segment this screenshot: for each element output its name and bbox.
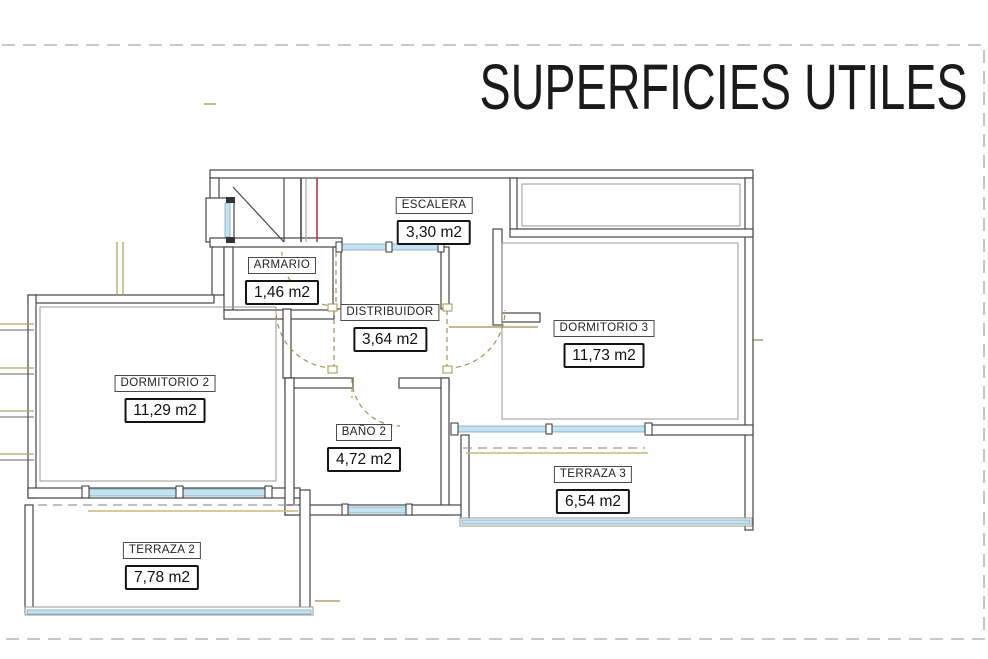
room-area-box: 6,54 m2 [556, 489, 630, 514]
floorplan-page: SUPERFICIES UTILES ESCALERA 3,30 m2 ARMA… [0, 0, 988, 659]
room-area-box: 11,73 m2 [563, 343, 644, 368]
room-label-dormitorio2: DORMITORIO 2 11,29 m2 [115, 375, 216, 423]
staircase [233, 178, 317, 242]
room-area-box: 1,46 m2 [245, 280, 319, 305]
room-name-box: ARMARIO [248, 257, 316, 274]
room-area-box: 3,64 m2 [353, 327, 427, 352]
room-area-box: 7,78 m2 [125, 565, 199, 590]
room-name-box: TERRAZA 3 [554, 466, 632, 483]
room-name-box: DORMITORIO 3 [554, 320, 655, 337]
room-label-terraza3: TERRAZA 3 6,54 m2 [554, 466, 632, 514]
room-label-armario: ARMARIO 1,46 m2 [245, 257, 319, 305]
room-label-bano2: BAÑO 2 4,72 m2 [327, 424, 401, 472]
room-area-box: 4,72 m2 [327, 447, 401, 472]
room-name-box: ESCALERA [396, 197, 473, 214]
room-name-box: DORMITORIO 2 [115, 375, 216, 392]
room-name-box: TERRAZA 2 [123, 542, 201, 559]
room-label-terraza2: TERRAZA 2 7,78 m2 [123, 542, 201, 590]
room-label-distribuidor: DISTRIBUIDOR 3,64 m2 [340, 304, 439, 352]
room-name-box: DISTRIBUIDOR [340, 304, 439, 321]
room-label-escalera: ESCALERA 3,30 m2 [396, 197, 473, 245]
duct-marks [117, 242, 123, 295]
room-area-box: 3,30 m2 [397, 220, 471, 245]
room-area-box: 11,29 m2 [124, 398, 205, 423]
room-label-dormitorio3: DORMITORIO 3 11,73 m2 [554, 320, 655, 368]
room-name-box: BAÑO 2 [336, 424, 393, 441]
page-title: SUPERFICIES UTILES [480, 50, 968, 124]
